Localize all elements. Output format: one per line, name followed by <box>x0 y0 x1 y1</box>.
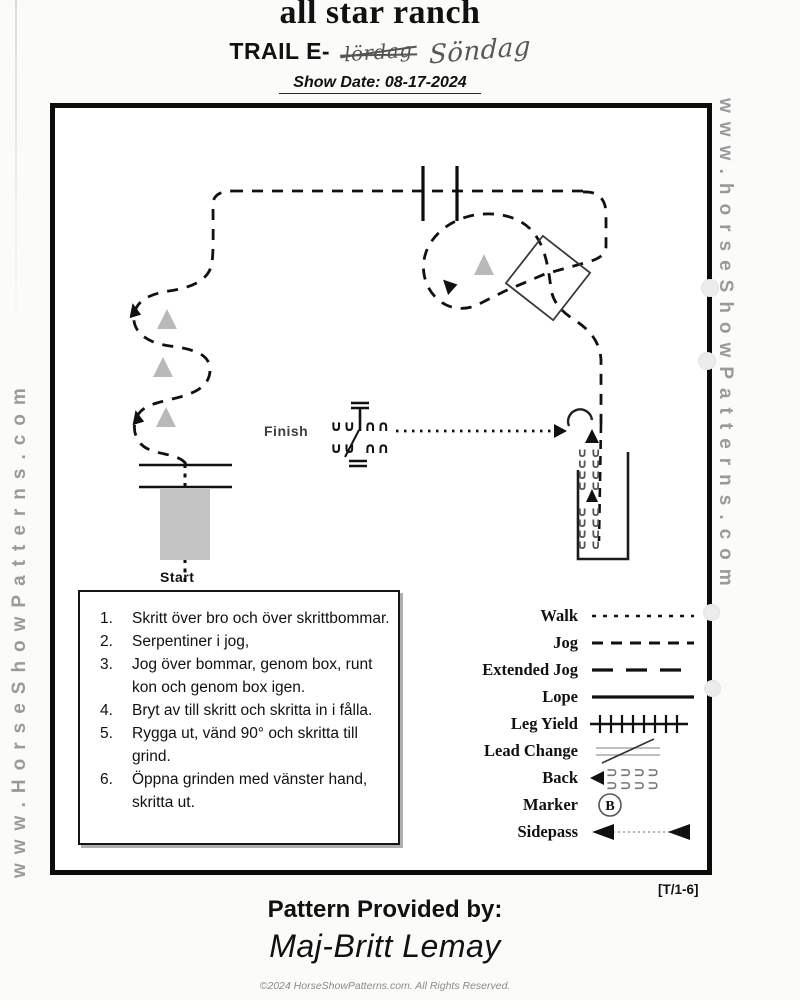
provider-name: Maj-Britt Lemay <box>0 928 770 965</box>
lead-change-icon <box>588 738 700 764</box>
leg-yield-icon <box>588 711 700 737</box>
class-label: TRAIL E- <box>229 38 330 64</box>
instruction-number: 3. <box>100 653 132 699</box>
legend-label: Marker <box>446 795 588 815</box>
instruction-text: Bryt av till skritt och skritta in i fål… <box>132 699 390 722</box>
legend-label: Jog <box>446 633 588 653</box>
start-label: Start <box>160 569 194 585</box>
instruction-text: Skritt över bro och över skrittbommar. <box>132 607 390 630</box>
instruction-item: 5. Rygga ut, vänd 90° och skritta till g… <box>100 722 390 768</box>
copyright-line: ©2024 HorseShowPatterns.com. All Rights … <box>0 980 770 992</box>
provided-by-label: Pattern Provided by: <box>0 896 770 924</box>
legend-row-walk: Walk <box>446 602 708 629</box>
legend-row-jog: Jog <box>446 629 708 656</box>
trail-pattern-page: { "header": { "title": "all star ranch",… <box>0 0 800 1000</box>
hole-punch <box>704 680 721 697</box>
svg-text:⊃⊃⊃⊃: ⊃⊃⊃⊃ <box>606 778 661 791</box>
legend-row-sidepass: Sidepass <box>446 818 708 845</box>
instruction-number: 4. <box>100 699 132 722</box>
instruction-item: 4. Bryt av till skritt och skritta in i … <box>100 699 390 722</box>
legend-label: Lope <box>446 687 588 707</box>
crossed-out-day: lördag <box>343 38 413 67</box>
legend-row-extended-jog: Extended Jog <box>446 656 708 683</box>
watermark-right: www.horseShowPatterns.com <box>714 98 736 888</box>
back-icon: ⊃⊃⊃⊃ ⊃⊃⊃⊃ <box>588 765 700 791</box>
instruction-item: 3. Jog över bommar, genom box, runt kon … <box>100 653 390 699</box>
walk-line-icon <box>588 603 700 629</box>
watermark-left: www.HorseShowPatterns.com <box>9 108 31 878</box>
legend-label: Sidepass <box>446 822 588 842</box>
legend-row-marker: Marker B <box>446 791 708 818</box>
legend-row-lead-change: Lead Change <box>446 737 708 764</box>
instruction-text: Öppna grinden med vänster hand, skritta … <box>132 768 390 814</box>
instruction-text: Jog över bommar, genom box, runt kon och… <box>132 653 390 699</box>
legend: Walk Jog Extended Jog Lope Leg Yield Lea <box>446 602 708 845</box>
show-date: Show Date: 08-17-2024 <box>0 74 760 92</box>
legend-row-back: Back ⊃⊃⊃⊃ ⊃⊃⊃⊃ <box>446 764 708 791</box>
pattern-ref: [T/1-6] <box>658 882 699 897</box>
sidepass-icon <box>588 819 700 845</box>
instruction-item: 1. Skritt över bro och över skrittbommar… <box>100 607 390 630</box>
show-date-text: Show Date: 08-17-2024 <box>279 74 480 94</box>
jog-line-icon <box>588 630 700 656</box>
page-title: all star ranch <box>0 0 760 32</box>
hole-punch <box>703 604 720 621</box>
instruction-text: Serpentiner i jog, <box>132 630 390 653</box>
instruction-number: 2. <box>100 630 132 653</box>
legend-label: Leg Yield <box>446 714 588 734</box>
instruction-item: 6. Öppna grinden med vänster hand, skrit… <box>100 768 390 814</box>
legend-label: Lead Change <box>446 741 588 761</box>
lope-line-icon <box>588 684 700 710</box>
finish-label: Finish <box>264 423 308 439</box>
legend-label: Back <box>446 768 588 788</box>
legend-row-lope: Lope <box>446 683 708 710</box>
pattern-instructions-box: 1. Skritt över bro och över skrittbommar… <box>78 590 400 845</box>
legend-label: Extended Jog <box>446 660 588 680</box>
instruction-number: 5. <box>100 722 132 768</box>
instruction-number: 1. <box>100 607 132 630</box>
class-heading: TRAIL E-lördagSöndag <box>0 36 760 66</box>
handwritten-day: Söndag <box>429 31 531 70</box>
extended-jog-line-icon <box>588 657 700 683</box>
instruction-item: 2. Serpentiner i jog, <box>100 630 390 653</box>
instruction-text: Rygga ut, vänd 90° och skritta till grin… <box>132 722 390 768</box>
hole-punch <box>701 279 719 297</box>
hole-punch <box>698 352 716 370</box>
svg-text:B: B <box>605 799 614 814</box>
legend-row-leg-yield: Leg Yield <box>446 710 708 737</box>
instruction-number: 6. <box>100 768 132 814</box>
legend-label: Walk <box>446 606 588 626</box>
marker-icon: B <box>588 792 700 818</box>
